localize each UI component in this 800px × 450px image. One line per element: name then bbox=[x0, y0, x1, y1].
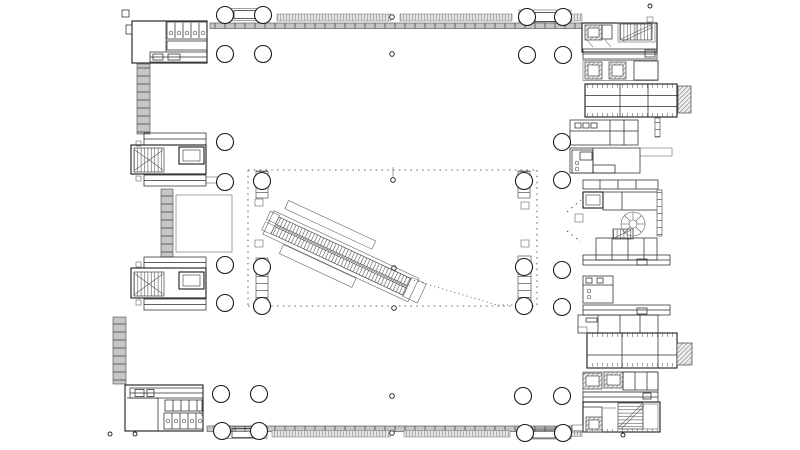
void-boundary-line bbox=[567, 231, 581, 242]
plan-shape-rect bbox=[585, 84, 677, 117]
small-post bbox=[621, 433, 625, 437]
escalator-treads-rect bbox=[275, 217, 411, 286]
plan-shape-rect bbox=[176, 195, 232, 252]
louver-strip-rect bbox=[272, 431, 390, 438]
small-post bbox=[390, 394, 395, 399]
plan-shape-rect bbox=[583, 180, 658, 189]
plan-shape-rect bbox=[588, 65, 599, 76]
plan-shape-rect bbox=[136, 262, 141, 267]
small-post bbox=[390, 52, 395, 57]
small-post bbox=[133, 432, 137, 436]
glazed-wall-rect bbox=[137, 64, 150, 134]
fixture bbox=[169, 31, 173, 35]
louver-strip-rect bbox=[400, 14, 512, 21]
plan-shape-rect bbox=[597, 278, 603, 283]
plan-shape-line bbox=[587, 40, 593, 47]
column bbox=[254, 173, 271, 190]
void-boundary-line bbox=[567, 200, 581, 212]
fixture bbox=[575, 161, 579, 165]
fixture bbox=[587, 295, 591, 299]
hatched-shaft-rect bbox=[677, 343, 692, 365]
floor-plan-svg bbox=[0, 0, 800, 450]
plan-shape-rect bbox=[591, 123, 597, 128]
plan-shape-rect bbox=[586, 113, 676, 117]
plan-shape-rect bbox=[634, 61, 658, 80]
small-post bbox=[108, 432, 112, 436]
column bbox=[554, 172, 571, 189]
fixture bbox=[198, 419, 202, 423]
plan-shape-rect bbox=[570, 120, 638, 145]
column bbox=[217, 174, 234, 191]
column bbox=[254, 298, 271, 315]
plan-shape-rect bbox=[575, 123, 581, 128]
column bbox=[519, 47, 536, 64]
plan-shape-rect bbox=[645, 50, 655, 57]
plan-shape-rect bbox=[612, 65, 623, 76]
plan-shape-rect bbox=[122, 10, 129, 17]
column bbox=[251, 386, 268, 403]
mullion-strip-rect bbox=[655, 118, 660, 137]
plan-shape-rect bbox=[535, 13, 556, 22]
column bbox=[217, 7, 234, 24]
column bbox=[555, 425, 572, 442]
fixture bbox=[201, 31, 205, 35]
fixture bbox=[182, 419, 186, 423]
column bbox=[515, 388, 532, 405]
plan-shape-rect bbox=[255, 199, 263, 206]
hatched-shaft-rect bbox=[678, 86, 691, 113]
small-post bbox=[390, 431, 395, 436]
plan-shape-rect bbox=[136, 300, 141, 305]
column bbox=[555, 9, 572, 26]
plan-shape-rect bbox=[588, 28, 599, 37]
column bbox=[217, 295, 234, 312]
plan-shape-rect bbox=[255, 240, 263, 247]
plan-shape-rect bbox=[607, 375, 620, 385]
column bbox=[255, 7, 272, 24]
column bbox=[554, 299, 571, 316]
column bbox=[251, 423, 268, 440]
plan-shape-rect bbox=[586, 85, 676, 89]
plan-shape-rect bbox=[167, 41, 207, 50]
mullion-strip-rect bbox=[657, 190, 662, 236]
plan-shape-rect bbox=[593, 165, 615, 173]
plan-shape-rect bbox=[580, 152, 592, 160]
column bbox=[213, 386, 230, 403]
plan-shape-rect bbox=[588, 334, 676, 338]
floor-plan-canvas bbox=[0, 0, 800, 450]
column bbox=[519, 9, 536, 26]
plan-shape-rect bbox=[643, 404, 658, 429]
plan-shape-rect bbox=[586, 318, 597, 322]
column bbox=[214, 423, 231, 440]
plan-shape bbox=[629, 220, 637, 228]
plan-shape-rect bbox=[584, 429, 658, 432]
escalator-group bbox=[256, 195, 434, 315]
plan-shape-rect bbox=[637, 308, 647, 314]
small-post bbox=[648, 4, 652, 8]
fixture bbox=[185, 31, 189, 35]
louver-strip-rect bbox=[277, 14, 391, 21]
plan-shape-rect bbox=[596, 238, 657, 260]
column bbox=[516, 173, 533, 190]
fixture bbox=[174, 419, 178, 423]
plan-shape-rect bbox=[602, 25, 612, 39]
plan-shape-rect bbox=[521, 240, 529, 247]
louver-strip-rect bbox=[404, 431, 510, 438]
plan-shape-line bbox=[636, 227, 642, 233]
column bbox=[217, 46, 234, 63]
plan-shape-rect bbox=[234, 11, 256, 19]
plan-shape-line bbox=[636, 216, 642, 222]
plan-shape-rect bbox=[643, 393, 651, 399]
fixture bbox=[166, 419, 170, 423]
escalator-treads-rect bbox=[271, 226, 407, 295]
fixture bbox=[587, 289, 591, 293]
plan-shape-rect bbox=[183, 150, 200, 161]
fixture bbox=[190, 419, 194, 423]
small-post bbox=[390, 15, 395, 20]
fixture bbox=[575, 167, 579, 171]
plan-shape-rect bbox=[588, 363, 676, 367]
fixture bbox=[177, 31, 181, 35]
glazed-wall-rect bbox=[113, 317, 126, 384]
small-post bbox=[392, 306, 397, 311]
plan-shape-rect bbox=[136, 176, 141, 181]
plan-shape-line bbox=[199, 411, 203, 417]
plan-shape-rect bbox=[165, 400, 202, 411]
column bbox=[554, 388, 571, 405]
plan-shape-rect bbox=[583, 123, 589, 128]
plan-shape-rect bbox=[167, 22, 207, 39]
plan-shape-rect bbox=[575, 214, 583, 222]
plan-shape-rect bbox=[586, 376, 599, 386]
plan-shape-rect bbox=[586, 195, 600, 205]
fixture bbox=[193, 31, 197, 35]
plan-shape-rect bbox=[578, 327, 587, 333]
glazed-wall-rect bbox=[161, 189, 173, 257]
void-boundary-polyline bbox=[406, 278, 523, 305]
column bbox=[217, 257, 234, 274]
column bbox=[516, 259, 533, 276]
plan-shape-line bbox=[625, 216, 631, 222]
plan-shape-rect bbox=[587, 333, 677, 368]
plan-shape-rect bbox=[589, 420, 599, 429]
column bbox=[554, 262, 571, 279]
plan-shape-rect bbox=[126, 25, 132, 34]
column bbox=[554, 134, 571, 151]
column bbox=[254, 259, 271, 276]
plan-shape-line bbox=[275, 225, 407, 287]
column bbox=[255, 46, 272, 63]
plan-shape-rect bbox=[521, 202, 529, 209]
column bbox=[217, 134, 234, 151]
plan-shape-rect bbox=[586, 278, 592, 283]
plan-shape-rect bbox=[647, 17, 653, 22]
plan-shape-rect bbox=[183, 275, 200, 286]
plan-shape-rect bbox=[623, 372, 658, 390]
plan-shape-rect bbox=[603, 192, 658, 210]
plan-shape-line bbox=[605, 40, 611, 47]
small-post bbox=[391, 178, 396, 183]
column bbox=[516, 298, 533, 315]
column bbox=[517, 425, 534, 442]
column bbox=[555, 47, 572, 64]
